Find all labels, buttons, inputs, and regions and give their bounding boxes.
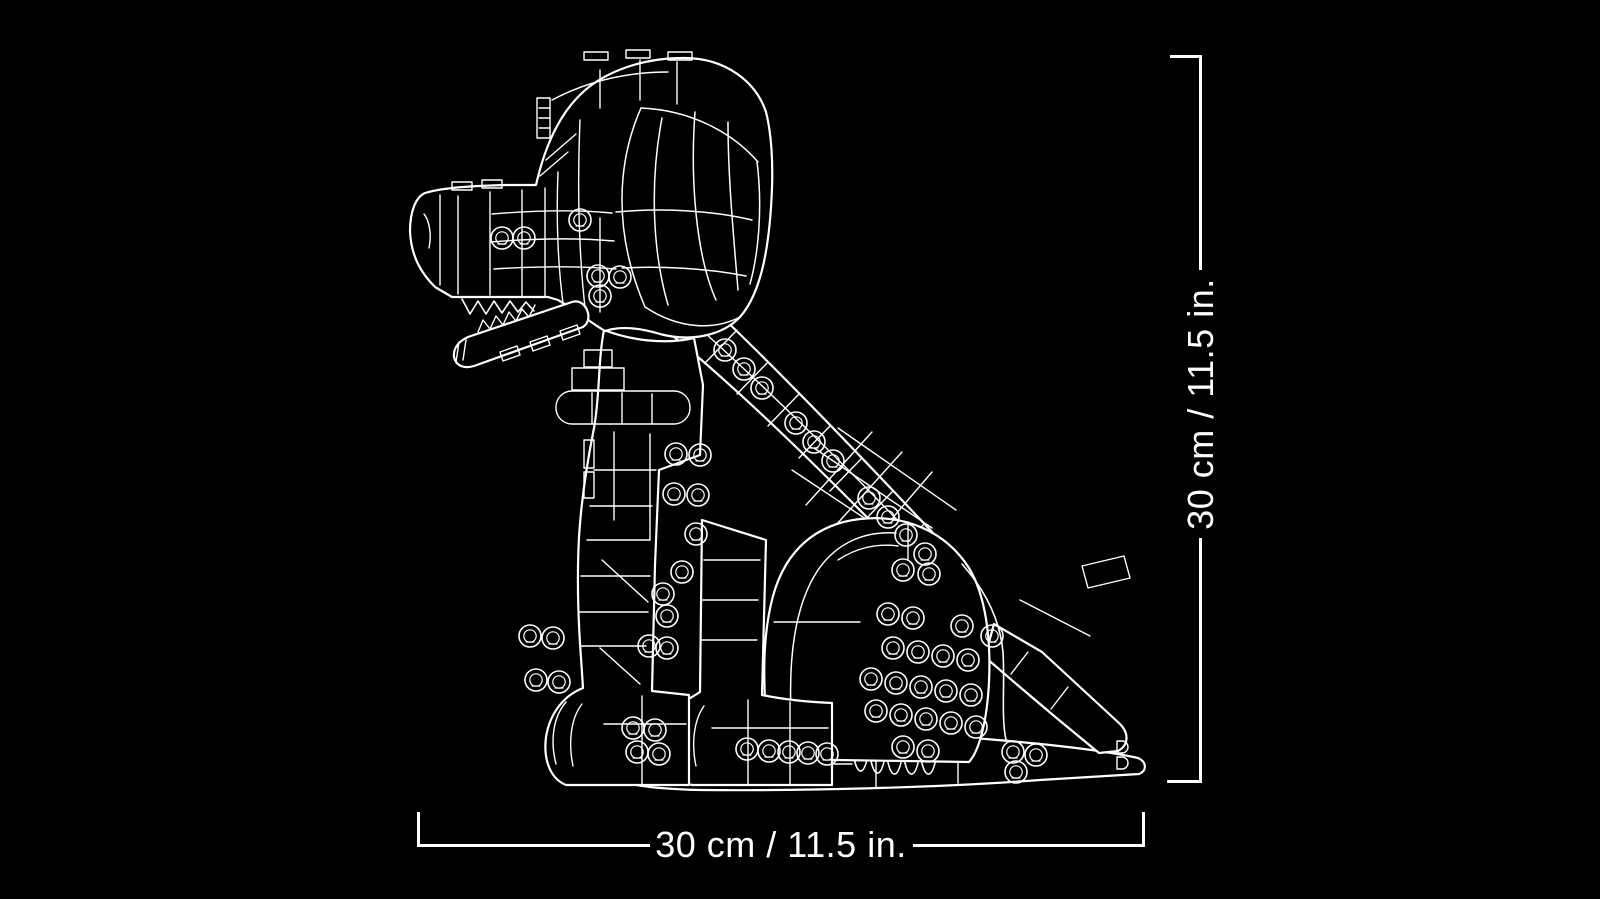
width-dimension-label: 30 cm / 11.5 in. — [655, 827, 906, 863]
dog-mouth — [454, 299, 589, 367]
height-bracket-top-segment — [1170, 57, 1201, 271]
height-bracket-bottom-segment — [1167, 538, 1201, 782]
stud-icon — [663, 483, 685, 505]
stud-icon — [687, 484, 709, 506]
dimension-diagram: 30 cm / 11.5 in. 30 cm / 11.5 in. — [0, 0, 1600, 899]
width-bracket-left-segment — [419, 812, 651, 846]
upper-teeth — [462, 299, 534, 314]
stud-icon — [671, 561, 693, 583]
dog-chest-front-leg — [545, 330, 703, 785]
stud-icon — [542, 627, 564, 649]
line-art-canvas — [0, 0, 1600, 899]
stud-icon — [525, 669, 547, 691]
dog-line-art — [410, 50, 1145, 790]
width-bracket-right-segment — [913, 812, 1144, 846]
height-dimension-label: 30 cm / 11.5 in. — [1183, 278, 1219, 529]
stud-icon — [656, 605, 678, 627]
stud-icon — [548, 671, 570, 693]
dog-head — [410, 50, 772, 337]
stud-icon — [519, 625, 541, 647]
